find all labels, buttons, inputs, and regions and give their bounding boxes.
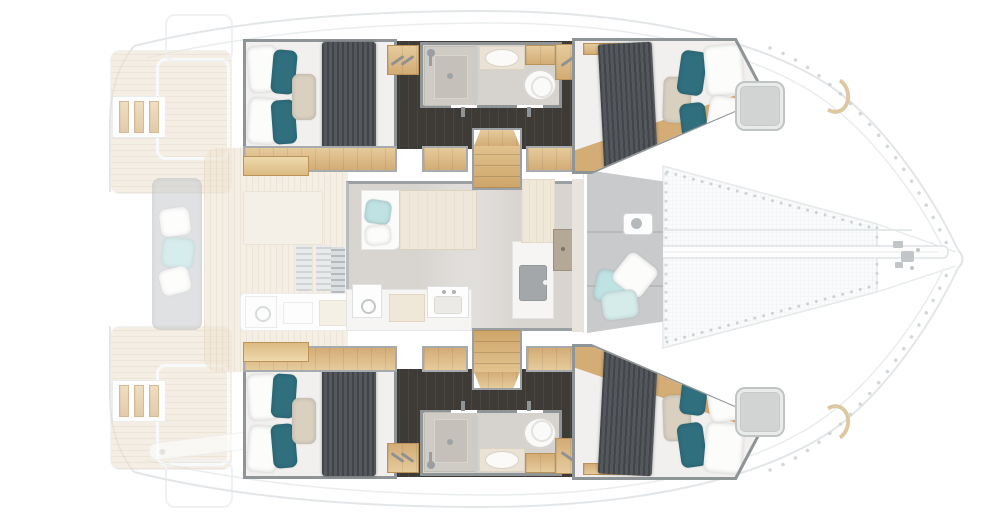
shower-head: [427, 461, 435, 469]
deck-hatch: [737, 83, 783, 129]
cockpit-vent: [296, 245, 312, 291]
stair-landing: [474, 372, 520, 388]
bow-cleat: [814, 73, 855, 118]
shower-drain: [447, 73, 453, 79]
foredeck-pillow: [600, 289, 640, 322]
sink-island: [512, 241, 554, 319]
bed-blanket: [322, 42, 376, 150]
hull-cabinet: [526, 146, 574, 172]
saloon-settee: [361, 190, 401, 250]
cockpit-pillow: [161, 236, 196, 269]
catamaran-floorplan: [0, 0, 981, 518]
settee-pillow: [363, 198, 392, 225]
toilet: [523, 417, 557, 449]
galley-sink: [427, 286, 469, 318]
aft-cabin: [243, 365, 397, 479]
saloon-dining-table: [399, 190, 477, 250]
teal-pillow: [679, 372, 710, 417]
stair-steps: [474, 330, 520, 372]
door-hinge: [527, 107, 531, 117]
saloon-vent: [331, 247, 345, 293]
lumbar-pillow: [292, 398, 316, 444]
hull-starboard: [240, 342, 860, 482]
bath-cabinet: [525, 45, 559, 65]
companionway-stairs: [472, 128, 522, 190]
bed-step: [243, 156, 309, 176]
washbasin: [485, 451, 519, 469]
cockpit-vent: [316, 245, 332, 291]
galley-board: [389, 294, 425, 322]
bow-cleat: [814, 401, 855, 446]
door-hinge: [527, 401, 531, 411]
cockpit-pillow: [158, 206, 192, 238]
washbasin-counter: [479, 46, 525, 70]
door-hinge: [461, 107, 465, 117]
cockpit-table: [243, 191, 323, 245]
bed-blanket: [598, 42, 659, 171]
hull-cabinet: [422, 346, 468, 372]
bath-cabinet: [525, 453, 559, 473]
galley-counter: [346, 289, 472, 331]
stair-landing: [474, 130, 520, 146]
vanity-shelf: [387, 45, 419, 75]
aft-cabin: [243, 39, 397, 153]
shower-drain: [447, 439, 453, 445]
bathroom: [420, 42, 562, 108]
door-hinge: [461, 401, 465, 411]
stair-steps: [474, 146, 520, 188]
bed-blanket: [322, 368, 376, 476]
hull-port: [240, 36, 860, 176]
teal-pillow: [679, 102, 710, 147]
lumbar-pillow: [292, 74, 316, 120]
washbasin: [485, 49, 519, 67]
shower: [424, 46, 476, 106]
bathroom: [420, 410, 562, 476]
galley-cabinet: [521, 179, 555, 243]
deck-hatch: [737, 389, 783, 435]
companionway-stairs: [472, 328, 522, 390]
shower: [424, 412, 476, 472]
hull-cabinet: [526, 346, 574, 372]
bed-step: [243, 342, 309, 362]
vanity-shelf: [387, 443, 419, 473]
deck-fitting: [623, 213, 653, 235]
hull-cabinet: [422, 146, 468, 172]
bed-blanket: [598, 348, 659, 477]
toilet: [523, 69, 557, 101]
settee-pillow: [364, 224, 392, 247]
washbasin-counter: [479, 448, 525, 472]
